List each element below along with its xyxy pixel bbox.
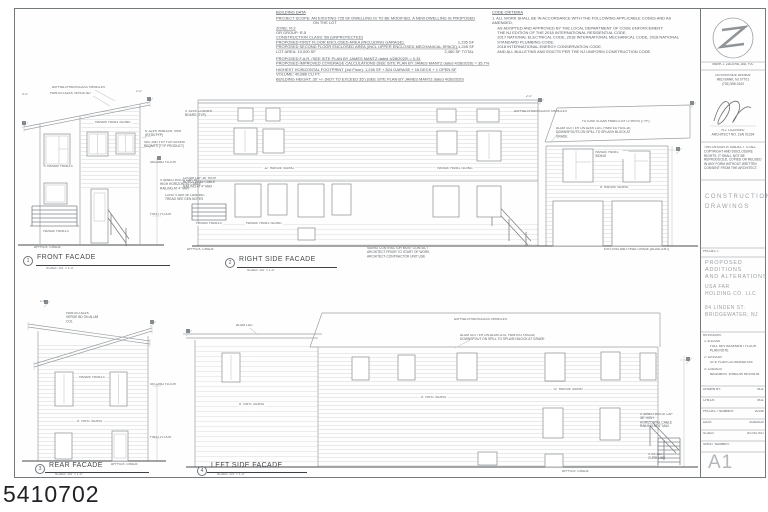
field-project-number-value: 20106 xyxy=(700,410,764,414)
leftfacade-b-siding-texture xyxy=(318,350,658,467)
annotation: PAINTED AZEK VERGE BD xyxy=(50,92,91,96)
annotation: HARDIE PANELS xyxy=(78,376,106,380)
revision-desc: FULL REV BASEMENT FLOOR PLAN NOTE xyxy=(710,345,761,353)
annotation: 2'-0" xyxy=(136,90,142,94)
revision-desc: SITE PLAN COORDINATION xyxy=(710,361,761,365)
garage-siding-texture xyxy=(546,146,668,246)
annotation: SECOND FLOOR xyxy=(150,383,176,387)
annotation: HARDIE PANEL SIDING xyxy=(94,121,132,125)
annotation: HARDIE PANEL SIDING xyxy=(245,222,283,226)
project-name-line: ADDITIONS xyxy=(705,267,767,274)
field-drawn-by-value: MJZ xyxy=(700,388,764,392)
field-sheet-number-label: SHEET NUMBER: xyxy=(703,443,730,447)
photo-id-watermark: 5410702 xyxy=(3,481,100,508)
annotation: CEDAR LAP 36" HIGH HORIZONTAL CABLE RAIL… xyxy=(183,177,226,189)
annotation: 12" HARDIE SIDING xyxy=(263,167,295,171)
annotation: EXISTING AND FINAL GRADE (ADJACENT) xyxy=(604,248,669,252)
field-date-value: 4/28/2020 xyxy=(700,421,764,425)
project-location: 84 LINDEN ST. BRIDGEWATER, NJ xyxy=(705,305,758,318)
annotation: 2'-0" xyxy=(526,95,532,99)
annotation: 8" AZEK WINDOW TRIM (EXTR TYP) xyxy=(145,130,183,138)
annotation: SIDING CONTRACTOR MUST CONTACT ARCHITECT… xyxy=(367,247,437,259)
license-info: N.J. LICENSED ARCHITECT NO. 21AI 01234 xyxy=(700,129,766,137)
left-facade-title: LEFT SIDE FACADE xyxy=(211,462,283,469)
project-label: PROJECT: xyxy=(703,250,719,254)
building-data-title: BUILDING DATA xyxy=(276,11,474,16)
left-facade-scale: SCALE: 1/4" = 1'-0" xyxy=(217,473,245,477)
annotation: 8" VINYL SIDING xyxy=(76,420,103,424)
annotation: HARDIE PANEL SIDING xyxy=(436,167,474,171)
annotation: APPROX. GRADE xyxy=(34,246,61,250)
left-facade-number: 4 xyxy=(197,466,207,476)
code-criteria-line: 1. ALL WORK SHALL BE IN ACCORDANCE WITH … xyxy=(492,17,683,26)
building-data-row: BUILDING HEIGHT: 30' +/- (NOT TO EXCEED … xyxy=(276,78,474,83)
building-data-row: PROJECT SCOPE: AN EXISTING 725 SF DWELLI… xyxy=(276,17,474,22)
revision-entry: 3: 11/5/2020 xyxy=(704,368,722,372)
annotation: ALUM LDG xyxy=(236,324,253,328)
annotation: HARDIE PANEL SIDING xyxy=(594,151,629,159)
annotation: SEE 2ND FLR FOR ASSEM REQMTS (TYP PRODUC… xyxy=(144,141,187,149)
rear-facade-number: 3 xyxy=(35,464,45,474)
client-name: USA FAR HOLDING CO. LLC xyxy=(705,284,756,297)
project-location-line: BRIDGEWATER, NJ xyxy=(705,312,758,319)
revision-entry: 1: 4/1/2020 xyxy=(704,340,720,344)
annotation: 8" HARDIE SIDING xyxy=(599,186,629,190)
right-facade-scale: SCALE: 1/4" = 1'-0" xyxy=(247,269,275,273)
revision-desc: BASEMENT WINDOW REVISION xyxy=(710,373,761,377)
annotation: HARDIE PANELS xyxy=(195,222,223,226)
annotation: ASPHALT/FIBERGLASS SHINGLES xyxy=(52,86,105,90)
sheet-number: A1 xyxy=(708,452,733,474)
annotation: APPROX. GRADE xyxy=(111,463,138,467)
rear-siding-texture xyxy=(38,342,148,460)
annotation: 1'-6" xyxy=(40,300,46,304)
building-data-block: BUILDING DATA PROJECT SCOPE: AN EXISTING… xyxy=(276,11,474,83)
field-scale-value: AS NOTED xyxy=(700,432,764,436)
code-criteria-title: CODE CRITERIA xyxy=(492,11,683,16)
annotation: HARDIE PANELS xyxy=(46,165,74,169)
project-name: PROPOSED ADDITIONS AND ALTERATIONS xyxy=(705,260,767,281)
firm-address-line: (732) 555-0100 xyxy=(700,82,766,86)
rightfacade-upper-siding-texture xyxy=(198,104,538,182)
firm-address: 25 RIVERSIDE AVENUE RED BANK, NJ 07701 (… xyxy=(700,74,766,87)
document-type: CONSTRUCTION DRAWINGS xyxy=(705,192,763,212)
annotation: LONG STAIR W/ LANDING TREAD SEE GEN NOTE… xyxy=(165,194,206,202)
annotation: HARDIE PANELS xyxy=(42,230,70,234)
annotation: STAINED WOOD CAP 36" HIGH HORIZONTAL CAB… xyxy=(640,413,675,429)
annotation: 4" AZEK CORNER BOARD (TYP) xyxy=(185,110,224,118)
revisions-label: REVISIONS: xyxy=(703,334,722,338)
firm-name: MARK J. ZACERA, AIA, P.A. xyxy=(700,63,766,67)
annotation: SECOND FLOOR xyxy=(150,161,176,165)
code-criteria-line: AND ALL BULLETINS AND EDICTS PER THE NJ … xyxy=(497,50,683,55)
annotation: FIRST FLOOR xyxy=(150,213,171,217)
annotation: FUTURE SOLAR PANELS BY OTHERS (TYP) xyxy=(582,120,649,124)
project-name-line: PROPOSED xyxy=(705,260,767,267)
annotation: 4'-0" xyxy=(22,93,28,97)
rear-facade-scale: SCALE: 1/4" = 1'-0" xyxy=(55,473,83,477)
license-line: ARCHITECT NO. 21AI 01234 xyxy=(700,133,766,137)
right-facade-title: RIGHT SIDE FACADE xyxy=(239,256,316,263)
project-name-line: AND ALTERATIONS xyxy=(705,274,767,281)
annotation: 8" VINYL SIDING xyxy=(238,403,265,407)
annotation: ASPHALT/FIBERGLASS SHINGLES xyxy=(454,318,507,322)
annotation: ASPHALT/FIBERGLASS SHINGLES xyxy=(514,110,567,114)
copyright-disclaimer: THIS DESIGN IS SUBJECT TO ALL COPYRIGHT … xyxy=(704,146,764,171)
annotation: 12" HARDIE SIDING xyxy=(552,388,584,392)
field-check-value: MJZ xyxy=(700,399,764,403)
code-criteria-block: CODE CRITERIA 1. ALL WORK SHALL BE IN AC… xyxy=(492,11,683,55)
annotation: STUCCO CURB LINE xyxy=(648,453,671,461)
client-name-line: HOLDING CO. LLC xyxy=(705,291,756,298)
front-facade-scale: SCALE: 1/4" = 1'-0" xyxy=(46,267,74,271)
annotation: APPROX. GRADE xyxy=(187,248,214,252)
annotation: ALUM GUTTER ON ALUM LDG, PAINTED FASCIA;… xyxy=(460,334,552,342)
building-data-row: PROPOSED IMPROVED COVERAGE CALCULATIONS … xyxy=(276,62,474,67)
rear-facade-title: REAR FACADE xyxy=(49,462,103,469)
revision-entry: 2: 10/3/2020 xyxy=(704,356,722,360)
front-facade-number: 1 xyxy=(23,256,33,266)
annotation: FIRST FLOOR xyxy=(150,436,171,440)
front-facade-title: FRONT FACADE xyxy=(37,254,96,261)
code-criteria-line: 2017 NATIONAL ELECTRICAL CODE, 2018 INTE… xyxy=(497,36,683,45)
annotation: PAINTED AZEK VERGE BD ON ALUM COL xyxy=(66,312,101,324)
building-data-row: LOT AREA: 10,000 SF2,480 SF TOTAL xyxy=(276,50,474,55)
right-facade-number: 2 xyxy=(225,258,235,268)
annotation: APPROX. GRADE xyxy=(562,470,589,474)
front-siding-texture xyxy=(81,104,139,188)
annotation: 8" VINYL SIDING xyxy=(420,396,447,400)
annotation: ALUM GUTTER ON AZEK LDG, PAINTED FASCIA;… xyxy=(556,127,642,139)
